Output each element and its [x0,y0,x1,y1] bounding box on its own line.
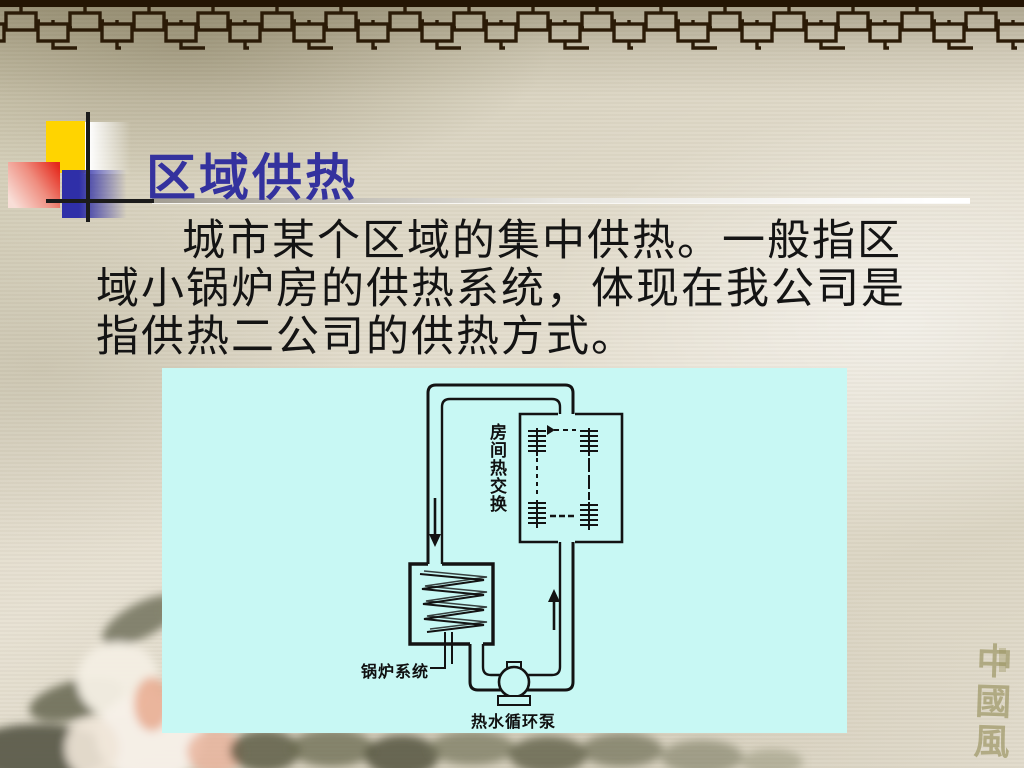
slide: 中國風 区域供热 [0,0,1024,768]
decor-horizontal-line [46,199,154,203]
decor-vertical-line [86,112,90,222]
boiler-label: 锅炉系统 [361,658,429,682]
accent-white-square [84,122,131,174]
heat-exchanger-label: 房间热交换 [488,423,505,519]
seal-tag [999,648,1006,672]
body-line: 城市某个区域的集中供热。一般指区 [96,218,906,266]
body-text: 城市某个区域的集中供热。一般指区 域小锅炉房的供热系统，体现在我公司是 指供热二… [96,218,906,362]
body-line: 域小锅炉房的供热系统，体现在我公司是 [96,266,906,314]
accent-blue-square [62,170,130,218]
pump-label: 热水循环泵 [471,708,556,732]
page-title: 区域供热 [146,138,358,210]
body-line: 指供热二公司的供热方式。 [96,314,906,362]
district-heating-diagram: 房间热交换 锅炉系统 热水循环泵 [162,368,847,733]
lattice-border-icon [0,0,1024,58]
